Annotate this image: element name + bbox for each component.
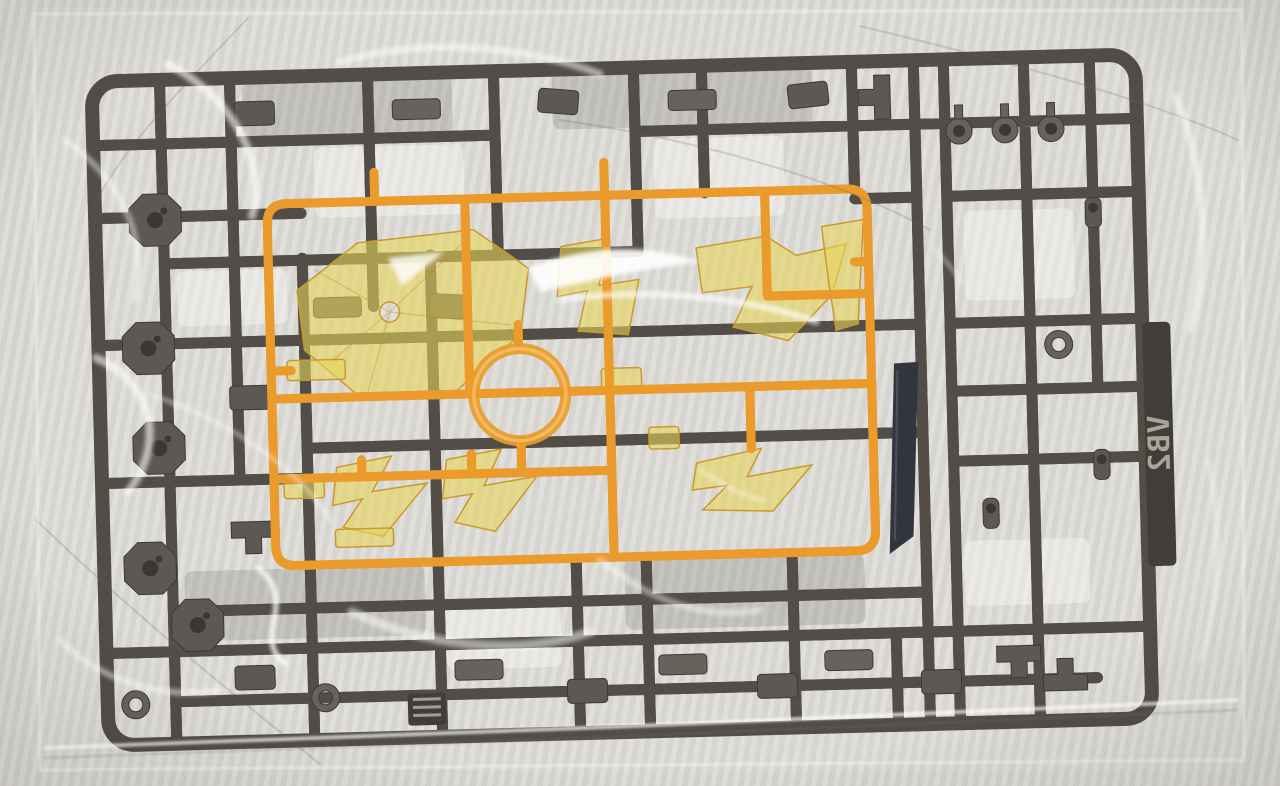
photo: VB2 <box>0 0 1280 786</box>
photo-vignette <box>0 0 1280 786</box>
photo-canvas: VB2 <box>0 0 1280 786</box>
